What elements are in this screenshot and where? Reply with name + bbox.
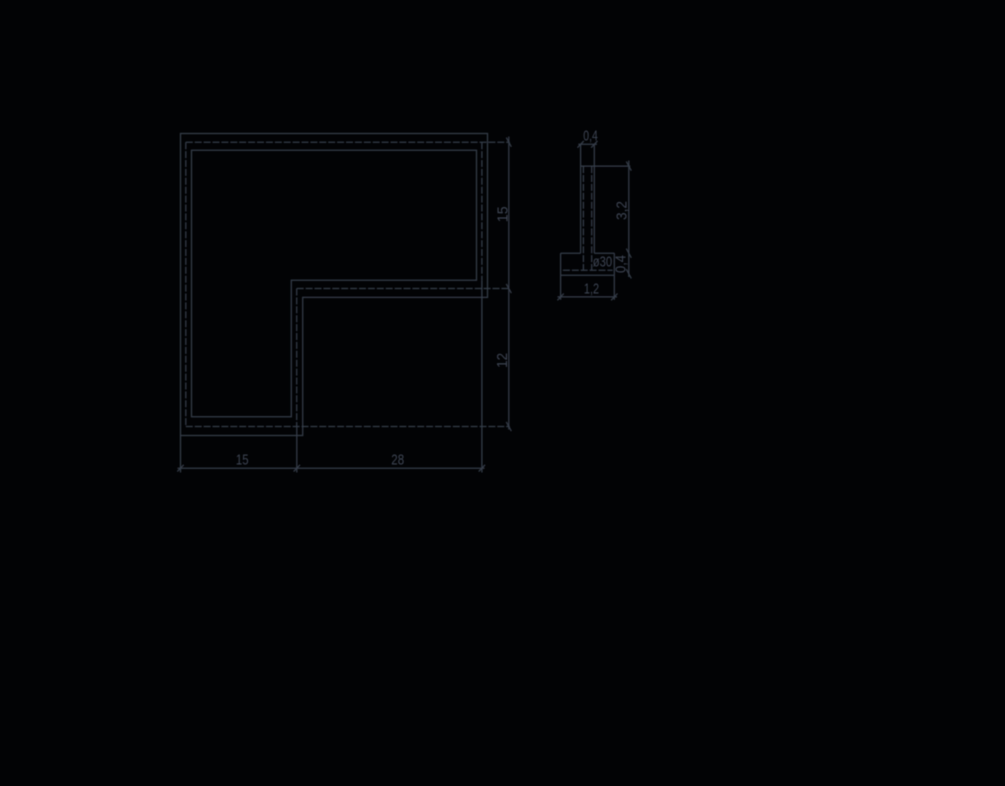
svg-text:15: 15 — [236, 451, 249, 468]
svg-text:1,2: 1,2 — [584, 281, 599, 298]
svg-text:15: 15 — [494, 206, 511, 222]
svg-text:12: 12 — [494, 353, 511, 368]
svg-text:ø30: ø30 — [593, 254, 612, 271]
svg-text:3,2: 3,2 — [613, 201, 630, 220]
svg-text:28: 28 — [391, 451, 404, 468]
svg-text:0,4: 0,4 — [583, 127, 598, 144]
svg-text:0,4: 0,4 — [612, 255, 629, 273]
